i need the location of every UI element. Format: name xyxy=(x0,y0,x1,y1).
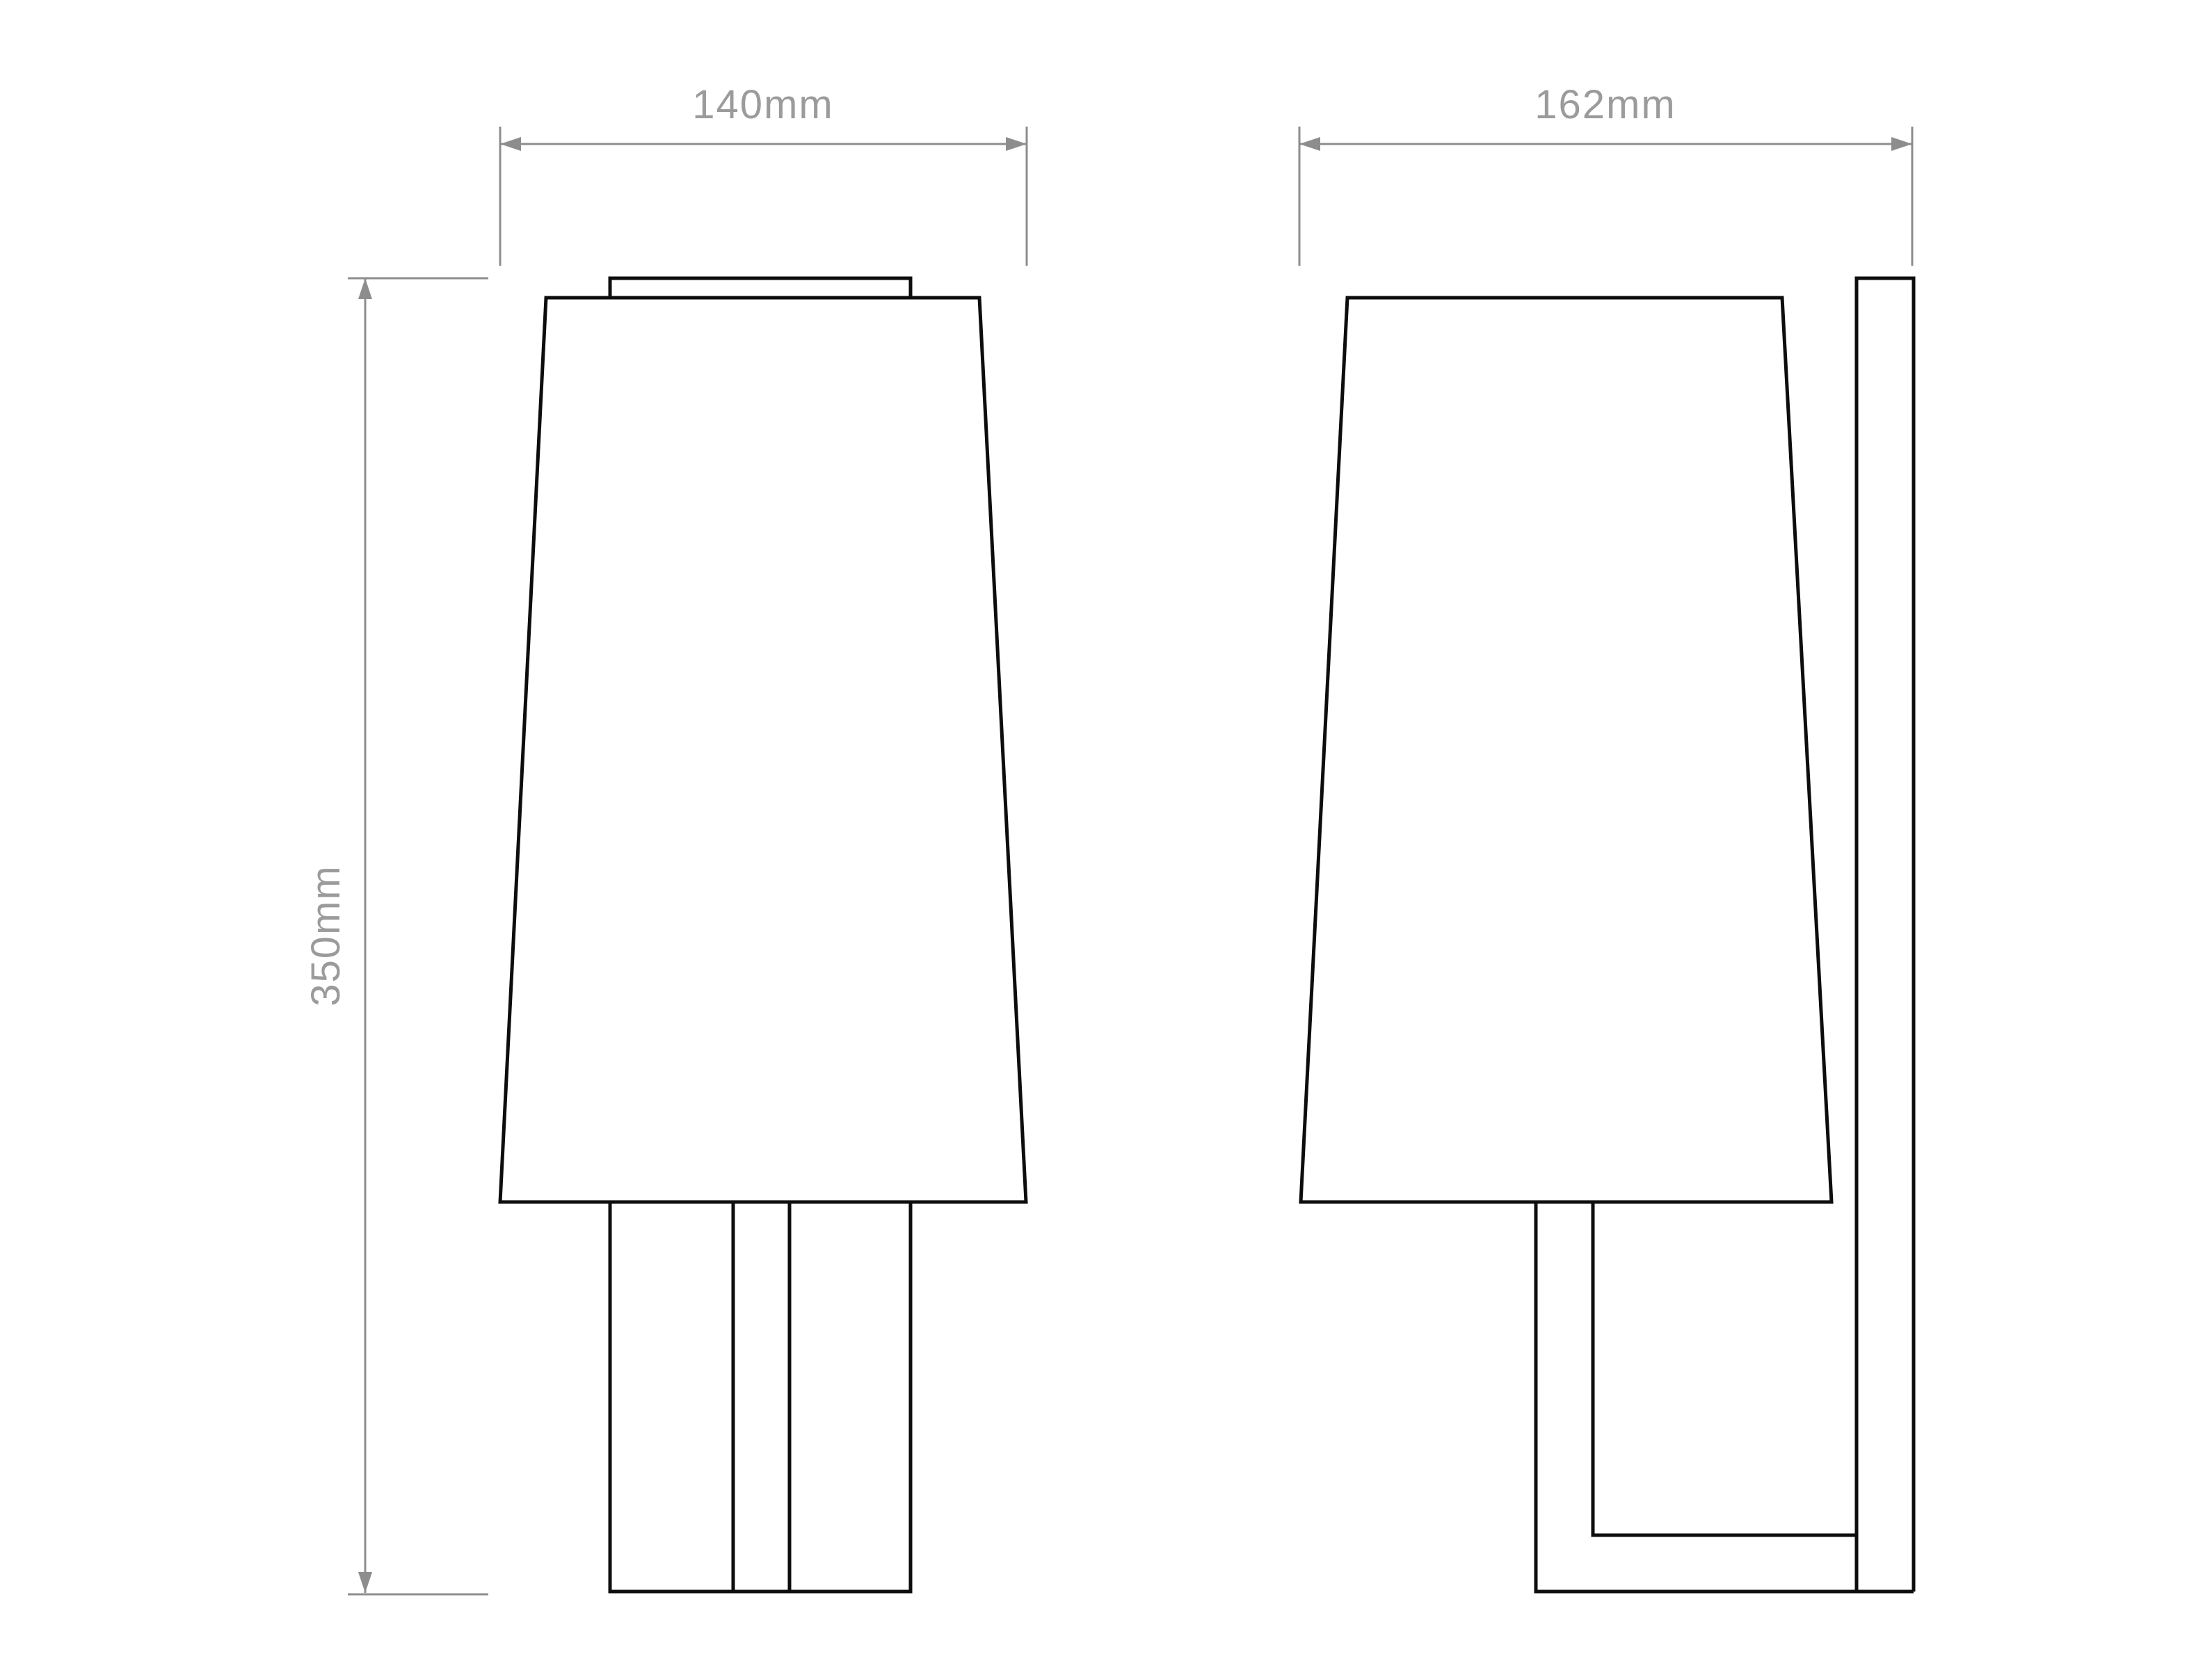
side-wall-plate xyxy=(1857,278,1914,1592)
height-arrow-top xyxy=(358,278,372,299)
front-view xyxy=(500,278,1026,1592)
depth-arrow-right xyxy=(1891,137,1912,151)
height-arrow-bottom xyxy=(358,1572,372,1593)
dimension-lines xyxy=(348,127,1912,1594)
side-shade xyxy=(1301,298,1832,1202)
side-view xyxy=(1301,278,1914,1592)
width-arrow-left xyxy=(500,137,521,151)
width-dimension-label: 140mm xyxy=(692,82,833,127)
width-extension-lines xyxy=(500,127,1027,266)
width-arrow-right xyxy=(1006,137,1027,151)
side-arm-inner xyxy=(1593,1202,1857,1535)
dimension-labels: 140mm 162mm 350mm xyxy=(303,82,1676,1007)
front-backplate-lower xyxy=(610,1202,911,1592)
technical-drawing-canvas: 140mm 162mm 350mm xyxy=(0,0,2212,1659)
depth-extension-lines xyxy=(1299,127,1912,266)
front-backplate-cap xyxy=(610,278,911,298)
depth-dimension-label: 162mm xyxy=(1534,82,1676,127)
height-extension-lines xyxy=(348,278,488,1594)
dimension-arrowheads xyxy=(358,137,1912,1593)
front-arm-bar xyxy=(733,1202,790,1590)
front-shade xyxy=(500,298,1026,1202)
height-dimension-label: 350mm xyxy=(303,865,348,1006)
depth-arrow-left xyxy=(1299,137,1320,151)
